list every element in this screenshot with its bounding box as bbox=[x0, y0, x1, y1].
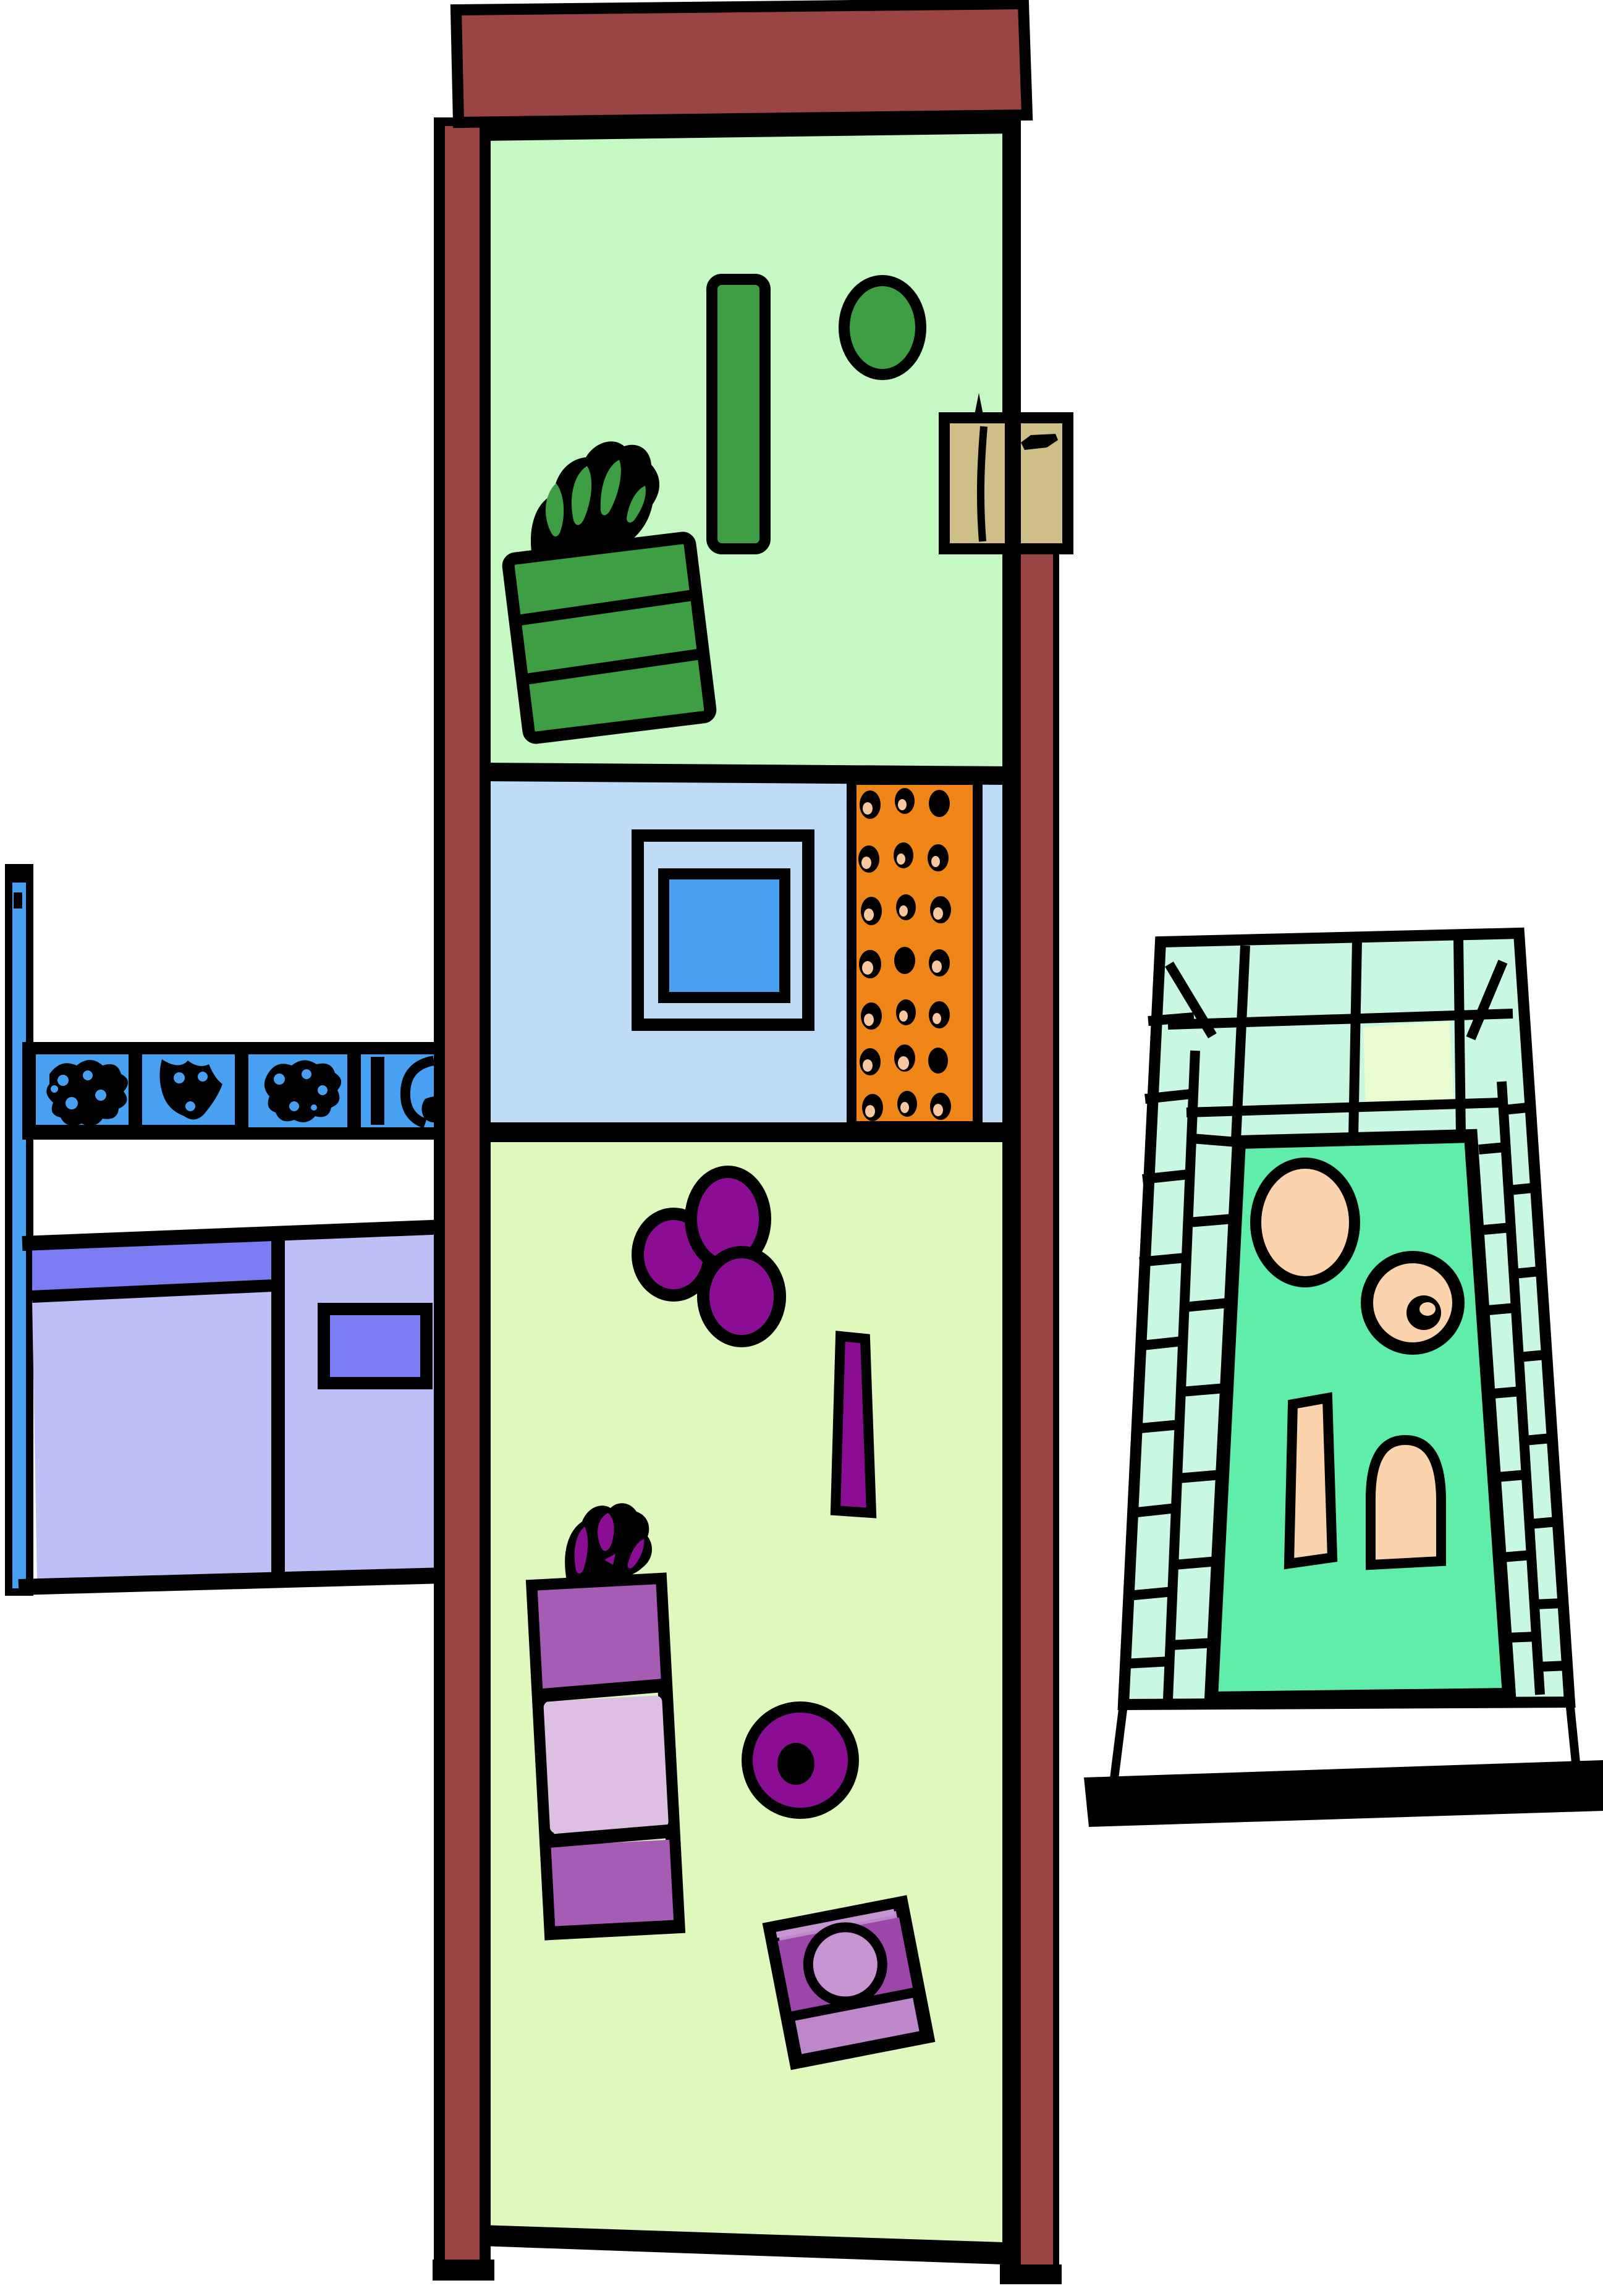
illustration-canvas bbox=[0, 0, 1603, 2296]
pool-board bbox=[1289, 1398, 1332, 1564]
cabinet-left-panel bbox=[32, 1289, 273, 1582]
green-chest bbox=[507, 537, 711, 739]
pool-mat-oval bbox=[1256, 1163, 1355, 1282]
purple-chest-middle bbox=[543, 1695, 669, 1834]
tan-cupboard-wall-line bbox=[1005, 409, 1021, 557]
pool-drain-inner-dot bbox=[1419, 1302, 1436, 1316]
tower-roof bbox=[456, 4, 1027, 122]
green-bench bbox=[712, 279, 765, 549]
pool-arch-mat bbox=[1371, 1440, 1441, 1565]
pool-base bbox=[1084, 1701, 1603, 1827]
purple-chest-bottom bbox=[551, 1840, 674, 1926]
cabinet-window bbox=[324, 1309, 426, 1383]
tile-doodle-flower bbox=[46, 1060, 128, 1126]
pool-drain bbox=[1367, 1257, 1458, 1349]
picture-frame-inner bbox=[664, 874, 785, 998]
tan-cupboard bbox=[944, 393, 1068, 557]
green-stool bbox=[844, 281, 921, 375]
left-cabinet bbox=[5, 864, 467, 1592]
pool bbox=[1084, 933, 1603, 1827]
donut-hole bbox=[777, 1743, 814, 1785]
tan-cupboard-seam bbox=[981, 426, 984, 541]
purple-chest bbox=[533, 1580, 677, 1933]
pool-base-bar bbox=[1084, 1760, 1603, 1827]
cabinet-pole bbox=[9, 870, 30, 1592]
pool-plinth-left-edge bbox=[1114, 1705, 1123, 1784]
cabinet-pole-dash bbox=[14, 892, 22, 909]
main-tower bbox=[433, 4, 1068, 2284]
purple-chest-top bbox=[538, 1584, 661, 1689]
plum-bottom bbox=[703, 1252, 780, 1341]
orange-pegboard bbox=[852, 780, 978, 1126]
left-wall-red bbox=[445, 126, 480, 2263]
left-wall-foot bbox=[433, 2260, 494, 2281]
cabinet-pole-cap bbox=[5, 864, 33, 883]
right-wall-red bbox=[1021, 546, 1053, 2266]
tile-strip bbox=[22, 1042, 463, 1140]
right-wall-foot bbox=[1000, 2264, 1062, 2284]
illustration-stage bbox=[0, 0, 1603, 2296]
purple-donut bbox=[747, 1707, 853, 1813]
right-wall-outer-line bbox=[1053, 546, 1059, 2266]
green-chest-box bbox=[507, 537, 711, 739]
purple-plank bbox=[835, 1336, 871, 1513]
pool-yellow-tile bbox=[1363, 1021, 1453, 1105]
cabinet-body bbox=[19, 1226, 467, 1587]
washing-machine bbox=[771, 1903, 928, 2062]
